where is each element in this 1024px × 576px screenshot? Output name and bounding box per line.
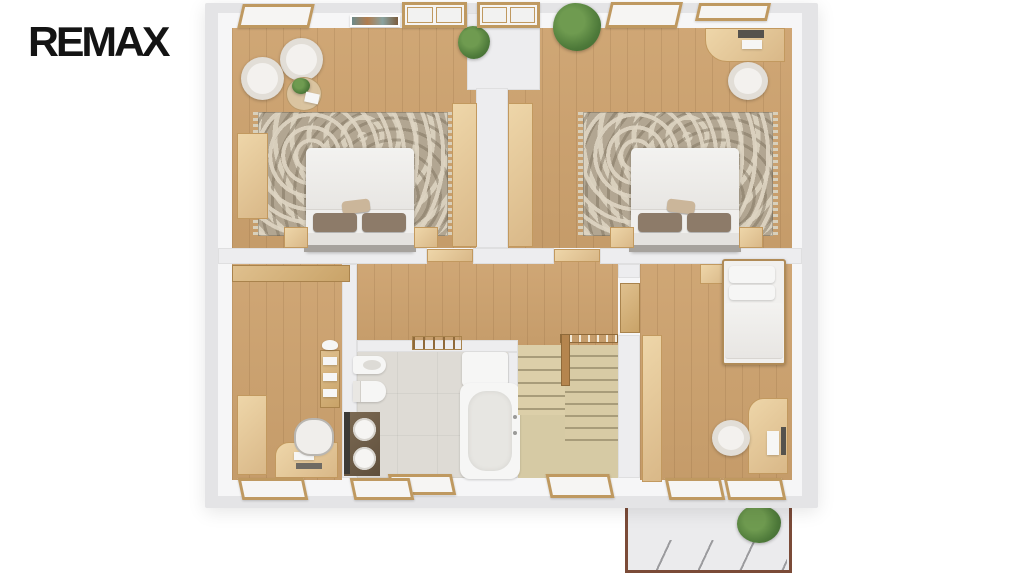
window-pane xyxy=(407,7,433,23)
bathtub-basin xyxy=(468,391,512,471)
window-pane xyxy=(482,7,507,23)
pillow xyxy=(362,213,406,232)
desk-top-right xyxy=(705,28,785,62)
shower xyxy=(462,352,508,386)
towel-shelf xyxy=(320,350,340,408)
balcony-bush-plant xyxy=(737,505,781,543)
toilet-tank xyxy=(353,381,361,402)
tall-cabinet xyxy=(237,395,267,475)
pillow xyxy=(729,285,775,300)
tilt-open-window xyxy=(605,2,683,28)
shell-decor xyxy=(322,340,338,350)
stairs-left-flight xyxy=(518,345,565,415)
towel xyxy=(323,389,337,397)
tilt-open-window xyxy=(695,3,771,21)
bedroom-left-door-threshold xyxy=(427,249,473,262)
armchair xyxy=(241,57,284,100)
wardrobe-bottom-right xyxy=(642,335,662,482)
headboard xyxy=(304,233,416,245)
nightstand xyxy=(610,227,634,248)
laptop xyxy=(767,431,779,455)
double-bed-left xyxy=(306,148,414,252)
open-door-panel xyxy=(620,283,640,333)
window-pane xyxy=(436,7,462,23)
round-sink xyxy=(353,418,376,441)
bathtub xyxy=(460,383,520,479)
vanity-edge xyxy=(344,412,350,474)
sink-vanity xyxy=(344,412,380,476)
nightstand xyxy=(414,227,438,248)
tub-faucet xyxy=(513,431,517,435)
built-in-wardrobe-right xyxy=(508,103,533,247)
balcony-door xyxy=(665,478,726,500)
single-bed xyxy=(722,259,786,365)
desk-chair xyxy=(712,420,750,456)
tilt-open-window xyxy=(238,478,309,500)
balcony-railing xyxy=(630,540,787,570)
double-bed-right xyxy=(631,148,739,252)
office-chair xyxy=(296,420,332,454)
nightstand xyxy=(739,227,763,248)
pillow xyxy=(638,213,682,232)
bidet xyxy=(353,356,386,374)
bedroom-right-door-threshold xyxy=(554,249,600,262)
tub-faucet xyxy=(513,415,517,419)
towel xyxy=(323,357,337,365)
tilt-open-window xyxy=(545,474,614,498)
casement-window xyxy=(477,2,540,28)
headboard-bench xyxy=(629,245,741,252)
desk-pad xyxy=(296,463,322,469)
wall-right-room-b xyxy=(618,335,640,478)
wall-between-bedrooms xyxy=(476,88,508,248)
towel xyxy=(323,373,337,381)
nightstand xyxy=(284,227,308,248)
stairs-right-flight xyxy=(565,345,618,441)
wall-picture xyxy=(350,15,400,27)
wardrobe-top-strip xyxy=(232,265,350,282)
floor-plan xyxy=(0,0,1024,576)
tilt-open-window xyxy=(350,478,415,500)
casement-window xyxy=(402,2,467,28)
window-pane xyxy=(510,7,535,23)
toilet xyxy=(353,381,386,402)
wall-mid-center xyxy=(473,248,554,264)
headboard-bench xyxy=(304,245,416,252)
pillow xyxy=(313,213,357,232)
round-sink xyxy=(353,447,376,470)
built-in-wardrobe-left xyxy=(452,103,477,247)
bidet-bowl xyxy=(363,360,381,370)
towel-ladder xyxy=(412,336,462,350)
wardrobe-bedroom-left xyxy=(237,133,268,219)
balcony xyxy=(625,500,792,573)
stair-newel-post xyxy=(561,334,570,386)
headboard xyxy=(629,233,741,245)
wall-right-room-a xyxy=(618,264,640,278)
pillow xyxy=(687,213,731,232)
laptop xyxy=(738,30,764,38)
paper-sheet xyxy=(742,40,762,49)
monitor xyxy=(781,427,786,455)
pillow xyxy=(729,266,775,283)
desk-chair xyxy=(728,62,768,100)
armchair xyxy=(280,38,323,81)
tilt-open-window xyxy=(237,4,315,28)
desk-bottom-right xyxy=(748,398,788,474)
balcony-door xyxy=(724,478,787,500)
duvet xyxy=(725,303,783,359)
